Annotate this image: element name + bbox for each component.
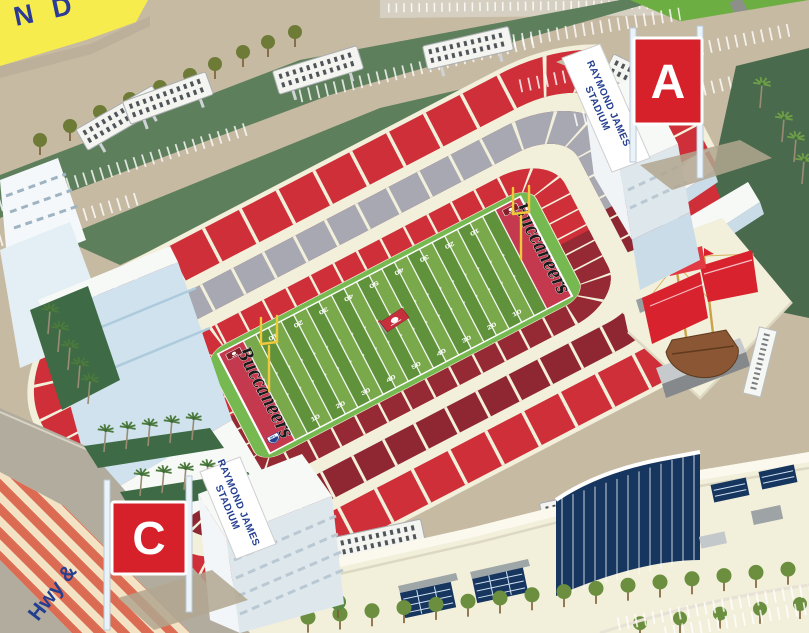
stadium-map: N D 101020203030404050504040303020201010… bbox=[0, 0, 809, 633]
gate-a-label: A bbox=[651, 56, 686, 109]
gate-c-label: C bbox=[132, 512, 165, 564]
